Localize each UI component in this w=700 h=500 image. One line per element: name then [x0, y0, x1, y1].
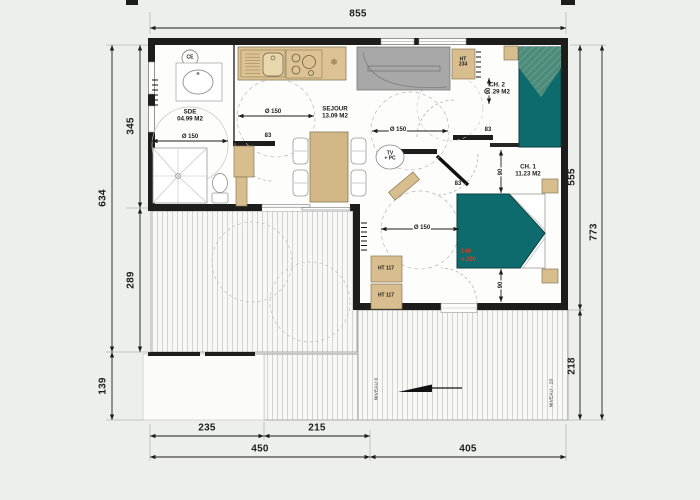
low-cabinet-2-label: HT 117: [378, 293, 394, 298]
floor-plan-drawing: [0, 0, 700, 500]
tv-label-line2: + PC: [384, 157, 395, 162]
clearance-sejour-left: Ø 150: [264, 109, 282, 115]
dim-bottom-deck: 215: [308, 424, 326, 435]
tall-cabinet-line2: 234: [459, 63, 467, 68]
shower-tray: [153, 148, 207, 203]
room-label-ch1: CH. 1 11.23 M2: [515, 164, 540, 177]
low-cabinet-1-label: HT 117: [378, 266, 394, 271]
door-width-ch1: 83: [455, 181, 462, 187]
clearance-ch1: Ø 150: [413, 225, 431, 231]
toilet-tank: [212, 193, 228, 203]
dim-bottom-right-total: 405: [459, 445, 477, 456]
bed-size-label: 140 x 200: [461, 248, 476, 264]
dim-right-deck: 218: [568, 357, 579, 375]
dim-left-deck: 289: [127, 271, 138, 289]
dim-right-total: 773: [590, 223, 601, 241]
dim-left-total: 634: [99, 189, 110, 207]
gap-bed-bottom: 90: [498, 281, 504, 290]
ch1-nightstand-bottom: [542, 269, 558, 283]
fridge-snowflake-icon: ❄: [330, 58, 338, 68]
dim-left-upper: 345: [127, 117, 138, 135]
floor-plan-page: 855 634 139 345 289 555 218 773 235 215 …: [0, 0, 700, 500]
dim-bottom-step: 235: [198, 424, 216, 435]
room-label-sde: SDE 04.99 M2: [177, 109, 203, 122]
room-sejour-area: 13.09 M2: [322, 113, 348, 120]
dim-top-width: 855: [349, 10, 367, 21]
tall-cabinet-label: HT 234: [459, 58, 467, 69]
clearance-sde: Ø 150: [181, 134, 199, 140]
sofa: [357, 47, 450, 90]
bed-size-line2: x 200: [461, 256, 476, 264]
clearance-sejour-right: Ø 150: [389, 127, 407, 133]
room-sde-area: 04.99 M2: [177, 116, 203, 123]
level-deck-label: NIVEAU 0: [375, 378, 380, 401]
room-label-sejour: SEJOUR 13.09 M2: [322, 106, 348, 119]
dim-bottom-left-total: 450: [251, 445, 269, 456]
dim-right-building: 555: [568, 168, 579, 186]
level-lower-deck-label: NIVEAU - 20: [550, 379, 555, 408]
gap-sofa: 90: [486, 87, 492, 96]
room-ch1-area: 11.23 M2: [515, 171, 540, 178]
sink-bowl: [263, 53, 283, 76]
toilet-bowl: [213, 174, 228, 193]
dim-left-step: 139: [99, 377, 110, 395]
door-width-sde: 83: [265, 133, 272, 139]
water-heater-label: CE: [187, 55, 194, 60]
sde-cabinet: [234, 146, 254, 177]
tv-label: TV + PC: [384, 152, 395, 163]
door-width-ch2: 83: [485, 127, 492, 133]
ch2-nightstand: [504, 46, 518, 60]
sde-cabinet-small: [236, 177, 247, 206]
ch1-wall-ticks: [361, 223, 367, 250]
dining-table: [310, 132, 348, 202]
bed-size-line1: 140: [461, 248, 476, 256]
ch1-nightstand-top: [542, 179, 558, 193]
gap-bed-top: 90: [498, 168, 504, 177]
